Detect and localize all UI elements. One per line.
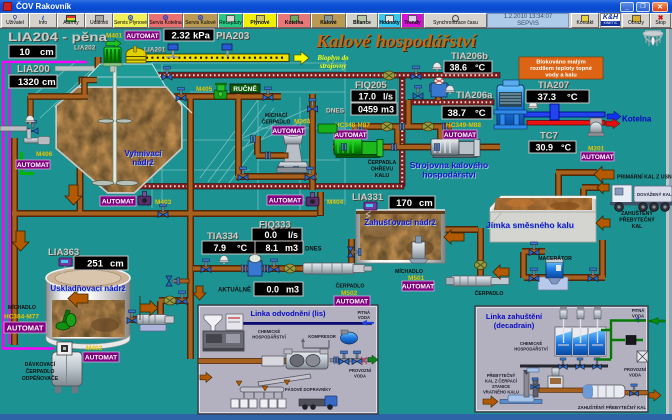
svg-text:Blokováno malým: Blokováno malým (536, 60, 586, 66)
svg-text:AUTOMAT: AUTOMAT (334, 132, 366, 139)
svg-text:PÁSOVÉ DOPRAVNÍKY: PÁSOVÉ DOPRAVNÍKY (285, 387, 331, 392)
svg-text:38.7: 38.7 (448, 108, 467, 119)
svg-text:FIQ333: FIQ333 (259, 220, 291, 231)
svg-text:ZAHUŠTĚNÝ: ZAHUŠTĚNÝ (621, 209, 653, 217)
svg-text:37.3: 37.3 (538, 92, 557, 103)
svg-text:Kotelna: Kotelna (622, 115, 652, 124)
svg-text:HC349-M88: HC349-M88 (446, 122, 481, 129)
svg-text:17.0: 17.0 (358, 92, 376, 102)
svg-text:hospodářství: hospodářství (422, 170, 476, 180)
svg-text:M404: M404 (327, 199, 344, 206)
svg-text:PROVOZNÍ: PROVOZNÍ (624, 367, 647, 372)
svg-text:HC384-M77: HC384-M77 (4, 314, 39, 321)
svg-text:AUTOMAT: AUTOMAT (85, 355, 117, 362)
svg-text:30.9: 30.9 (535, 143, 553, 153)
svg-text:M405: M405 (196, 86, 213, 93)
svg-text:PŘEBYTEČNÝ: PŘEBYTEČNÝ (487, 373, 516, 378)
svg-text:ČERPADLO: ČERPADLO (262, 119, 291, 126)
svg-text:FIQ205: FIQ205 (355, 80, 387, 91)
svg-text:DNES: DNES (305, 247, 322, 253)
svg-text:°C: °C (237, 243, 248, 253)
svg-text:°C: °C (561, 143, 572, 153)
svg-text:PŘEBYTEČNÝ: PŘEBYTEČNÝ (619, 216, 655, 224)
svg-text:AUTOMAT: AUTOMAT (402, 284, 434, 291)
svg-text:AUTOMAT: AUTOMAT (272, 128, 304, 135)
svg-text:m3: m3 (381, 105, 394, 115)
svg-text:1320: 1320 (18, 77, 39, 88)
svg-text:DOVÁŽENÝ KAL: DOVÁŽENÝ KAL (637, 192, 672, 197)
svg-text:Kalové hospodářství: Kalové hospodářství (315, 31, 478, 51)
svg-text:AUTOMAT: AUTOMAT (126, 33, 158, 40)
svg-text:(decadrain): (decadrain) (494, 321, 535, 330)
svg-text:LIA202: LIA202 (74, 45, 96, 52)
svg-text:170: 170 (396, 198, 412, 209)
svg-text:MÍCHADLO: MÍCHADLO (8, 303, 36, 311)
svg-text:cm: cm (42, 77, 56, 88)
svg-text:AUTOMAT: AUTOMAT (102, 199, 134, 206)
svg-text:MÍCHADLO: MÍCHADLO (395, 267, 423, 275)
svg-text:KALU: KALU (375, 173, 390, 179)
svg-text:TIA207: TIA207 (538, 80, 569, 91)
svg-text:M201: M201 (588, 146, 605, 153)
svg-text:251: 251 (87, 259, 104, 270)
svg-text:M401: M401 (106, 33, 123, 40)
svg-text:7.9: 7.9 (213, 243, 226, 253)
svg-text:AUTOMAT: AUTOMAT (581, 154, 613, 161)
svg-text:ČERPADLA: ČERPADLA (368, 159, 397, 166)
svg-text:VRATNÉHO KALU: VRATNÉHO KALU (483, 390, 519, 395)
svg-text:°C: °C (475, 108, 486, 119)
svg-text:AUTOMAT: AUTOMAT (444, 132, 476, 139)
svg-text:LIA200: LIA200 (17, 64, 50, 75)
svg-text:TIA206a: TIA206a (456, 90, 493, 101)
svg-text:CHEMICKÉ: CHEMICKÉ (520, 341, 543, 346)
svg-text:TIA334: TIA334 (207, 231, 239, 242)
svg-text:Bioplyn do: Bioplyn do (316, 54, 349, 62)
svg-text:Uskladňovací nádrž: Uskladňovací nádrž (50, 284, 125, 293)
svg-text:Strojovna kalového: Strojovna kalového (410, 160, 488, 170)
svg-text:Zahušťovací nádrž: Zahušťovací nádrž (364, 218, 435, 227)
svg-text:Linka zahuštění: Linka zahuštění (486, 312, 543, 321)
svg-text:m3: m3 (286, 285, 299, 295)
svg-text:LIA204 - pěna: LIA204 - pěna (8, 32, 108, 44)
svg-text:10: 10 (19, 47, 30, 58)
svg-text:AUTOMAT: AUTOMAT (17, 162, 49, 169)
svg-text:ČERPADLO: ČERPADLO (26, 368, 55, 375)
svg-text:2.32: 2.32 (172, 31, 191, 42)
svg-text:HOSPODÁŘSTVÍ: HOSPODÁŘSTVÍ (514, 347, 548, 352)
svg-text:KAL Z ČERPACÍ: KAL Z ČERPACÍ (485, 379, 518, 384)
svg-text:strojovny: strojovny (319, 62, 347, 70)
svg-text:l/s: l/s (288, 230, 298, 240)
svg-text:VODA: VODA (358, 315, 370, 320)
svg-text:Linka odvodnění (lis): Linka odvodnění (lis) (250, 309, 326, 318)
svg-text:8.1: 8.1 (265, 243, 278, 253)
svg-text:kPa: kPa (193, 31, 211, 42)
svg-text:DÁVKOVACÍ: DÁVKOVACÍ (25, 360, 56, 368)
svg-text:AKTUÁLNĚ: AKTUÁLNĚ (218, 286, 251, 294)
svg-text:KOMPRESOR: KOMPRESOR (308, 334, 335, 339)
svg-text:AUTOMAT: AUTOMAT (7, 324, 44, 333)
svg-text:cm: cm (40, 47, 54, 58)
svg-text:LIA201: LIA201 (144, 47, 166, 54)
svg-text:nádrž: nádrž (132, 158, 153, 167)
svg-text:M403: M403 (155, 199, 172, 206)
svg-text:PRIMÁRNÍ KAL Z USN: PRIMÁRNÍ KAL Z USN (617, 173, 672, 181)
svg-text:CHEMICKÉ: CHEMICKÉ (258, 329, 281, 334)
svg-text:M204: M204 (294, 119, 311, 126)
svg-text:rozdílem teploty topné: rozdílem teploty topné (530, 66, 593, 72)
svg-text:l/s: l/s (383, 92, 393, 102)
svg-text:M406: M406 (36, 151, 53, 158)
svg-text:KAL: KAL (632, 224, 643, 230)
svg-text:TIA206b: TIA206b (451, 51, 488, 62)
svg-text:Jímka směsného kalu: Jímka směsného kalu (486, 220, 574, 230)
svg-text:MÍCHACÍ: MÍCHACÍ (265, 111, 288, 119)
svg-text:°C: °C (475, 63, 486, 73)
svg-text:m3: m3 (285, 243, 298, 253)
svg-text:AUTOMAT: AUTOMAT (336, 299, 368, 306)
svg-text:MACERÁTOR: MACERÁTOR (538, 255, 572, 262)
svg-text:VODA: VODA (354, 374, 366, 379)
svg-text:M402: M402 (86, 345, 103, 352)
svg-text:PITNÁ: PITNÁ (632, 308, 645, 313)
svg-text:Vyhnívací: Vyhnívací (124, 149, 162, 158)
svg-text:DNES: DNES (326, 108, 345, 115)
svg-text:vody a kalu: vody a kalu (545, 73, 577, 79)
svg-text:VODA: VODA (629, 373, 641, 378)
svg-text:PIA203: PIA203 (216, 31, 250, 42)
svg-text:OHŘEVU: OHŘEVU (371, 165, 393, 173)
svg-text:STANICE: STANICE (492, 384, 510, 389)
svg-text:LIA363: LIA363 (48, 247, 79, 258)
svg-text:0459: 0459 (358, 105, 378, 115)
svg-text:0.0: 0.0 (264, 230, 277, 240)
svg-text:ČERPADLO: ČERPADLO (336, 283, 365, 290)
svg-text:PROVOZNÍ: PROVOZNÍ (349, 368, 372, 373)
svg-text:AUTOMAT: AUTOMAT (269, 198, 301, 205)
svg-text:0.0: 0.0 (266, 285, 279, 295)
svg-text:cm: cm (110, 259, 124, 270)
svg-text:HOSPODÁŘSTVÍ: HOSPODÁŘSTVÍ (252, 335, 286, 340)
svg-text:ČERPADLO: ČERPADLO (475, 290, 504, 297)
svg-text:ZAHUŠTĚNÝ PŘEBYTEČNÝ KAL: ZAHUŠTĚNÝ PŘEBYTEČNÝ KAL (578, 405, 647, 410)
svg-text:ODPĚŇOVAČE: ODPĚŇOVAČE (22, 374, 59, 382)
svg-text:RUČNĚ: RUČNĚ (233, 84, 257, 93)
svg-text:°C: °C (567, 92, 578, 103)
svg-text:TC7: TC7 (540, 131, 558, 142)
svg-text:LIA331: LIA331 (352, 192, 384, 203)
svg-text:HC348-M87: HC348-M87 (335, 122, 370, 129)
svg-text:38.6: 38.6 (449, 63, 467, 73)
svg-text:cm: cm (419, 198, 433, 209)
